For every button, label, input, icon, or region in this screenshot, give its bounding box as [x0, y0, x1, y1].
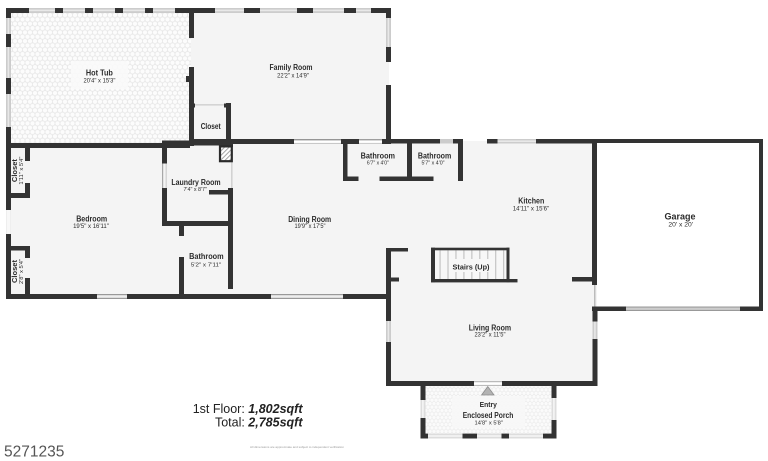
svg-text:Total: 2,785sqft: Total: 2,785sqft [215, 416, 303, 430]
svg-text:Hot Tub: Hot Tub [86, 68, 113, 77]
svg-text:Bedroom: Bedroom [76, 214, 107, 223]
svg-text:Kitchen: Kitchen [518, 196, 544, 205]
svg-text:Bathroom: Bathroom [418, 151, 451, 160]
svg-text:Dining Room: Dining Room [288, 215, 331, 224]
svg-text:7'4" x 8'7": 7'4" x 8'7" [183, 187, 207, 193]
svg-text:5271235: 5271235 [4, 443, 64, 460]
svg-text:Bathroom: Bathroom [189, 252, 224, 261]
svg-text:22'2" x 14'9": 22'2" x 14'9" [277, 73, 309, 79]
svg-text:All dimensions are approximate: All dimensions are approximate and subje… [250, 445, 344, 449]
svg-text:Bathroom: Bathroom [361, 151, 395, 160]
svg-text:Enclosed Porch: Enclosed Porch [463, 411, 514, 420]
svg-text:20' x 20': 20' x 20' [668, 221, 693, 228]
svg-text:Entry: Entry [480, 400, 498, 409]
svg-text:14'11" x 15'6": 14'11" x 15'6" [513, 206, 550, 212]
svg-text:Stairs (Up): Stairs (Up) [453, 262, 490, 271]
svg-text:5'2" x 7'11": 5'2" x 7'11" [191, 262, 221, 268]
svg-text:5'7" x 4'0": 5'7" x 4'0" [422, 161, 445, 167]
svg-text:19'5" x 16'11": 19'5" x 16'11" [73, 224, 109, 230]
svg-text:Living Room: Living Room [469, 324, 511, 333]
svg-text:Closet: Closet [201, 122, 221, 131]
svg-text:2'8" x 5'4": 2'8" x 5'4" [19, 259, 25, 284]
svg-text:Family Room: Family Room [270, 63, 313, 72]
svg-text:19'9" x 17'5": 19'9" x 17'5" [295, 224, 326, 230]
svg-text:14'8" x 5'8": 14'8" x 5'8" [475, 420, 503, 426]
svg-text:6'7" x 4'0": 6'7" x 4'0" [367, 161, 389, 167]
svg-text:Garage: Garage [665, 212, 696, 222]
svg-text:1st Floor: 1,802sqft: 1st Floor: 1,802sqft [193, 402, 304, 416]
svg-text:Laundry Room: Laundry Room [171, 178, 220, 187]
svg-text:23'2" x 11'5": 23'2" x 11'5" [475, 332, 506, 338]
svg-text:20'4" x 15'3": 20'4" x 15'3" [84, 78, 116, 84]
svg-text:1'11" x 5'4": 1'11" x 5'4" [19, 156, 25, 184]
